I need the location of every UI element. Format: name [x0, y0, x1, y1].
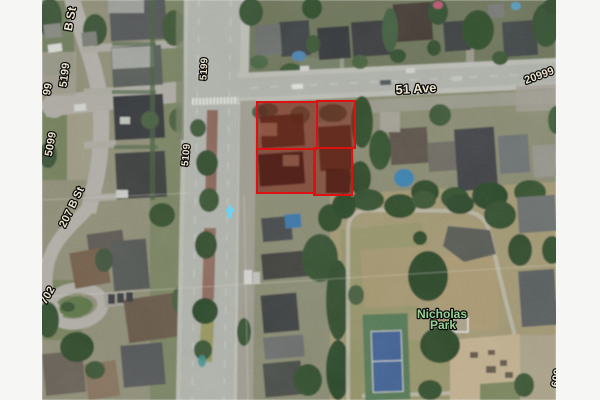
svg-text:99: 99	[41, 82, 55, 96]
svg-text:5109: 5109	[180, 143, 193, 167]
svg-text:Park: Park	[430, 318, 456, 332]
svg-text:51 Ave: 51 Ave	[395, 80, 437, 97]
svg-text:5199: 5199	[198, 57, 210, 80]
